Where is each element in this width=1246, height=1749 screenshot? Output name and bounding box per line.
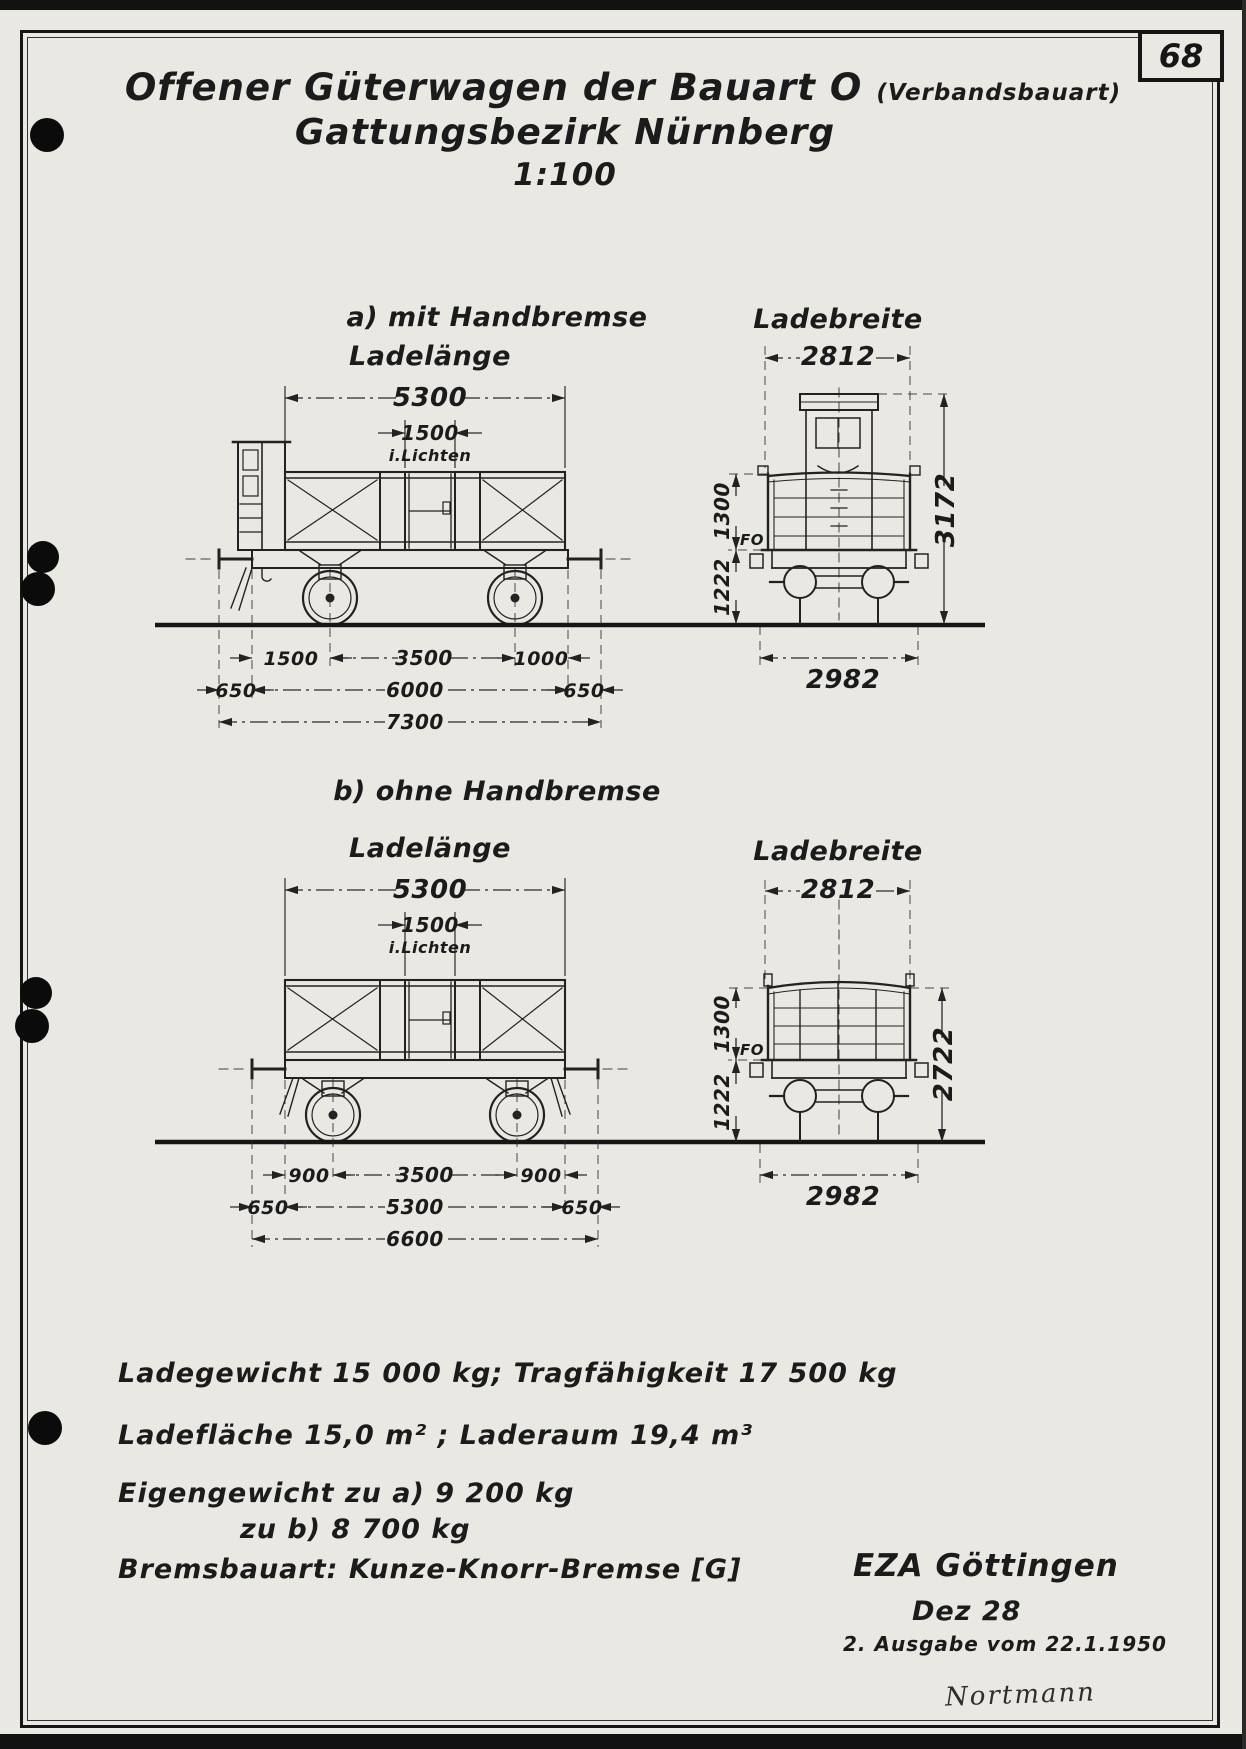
spec-load-weight: Ladegewicht 15 000 kg; Tragfähigkeit 17 …	[118, 1358, 898, 1389]
dim-rows-b: 900 3500 900 650 5300 650 6600	[230, 1078, 620, 1251]
dim-a-row2-left: 650	[215, 680, 256, 702]
load-width-label-a: Ladebreite	[753, 304, 923, 335]
scan-edge-bottom	[0, 1734, 1246, 1749]
section-b-drawing: b) ohne Handbremse Ladelänge 5300 1500 i…	[0, 760, 1246, 1280]
title-note: (Verbandsbauart)	[876, 80, 1121, 106]
dim-a-row1-right: 1000	[514, 648, 569, 670]
dim-wall-height-b: 1300	[710, 995, 734, 1053]
dim-door-width-b: 1500 i.Lichten	[378, 912, 482, 976]
dim-overall-width-b: 2982	[806, 1182, 880, 1212]
dim-load-width-b: Ladebreite 2812	[753, 836, 923, 982]
section-b-heading: b) ohne Handbremse	[333, 776, 661, 807]
page-number: 68	[1159, 37, 1204, 75]
dim-overall-width-a: 2982	[806, 665, 880, 695]
dim-door-width-b-value: 1500	[401, 913, 459, 937]
page-number-box: 68	[1138, 30, 1224, 82]
scan-edge-top	[0, 0, 1246, 10]
dim-b-row2-mid: 5300	[386, 1195, 444, 1219]
section-a-heading: a) mit Handbremse	[347, 302, 648, 333]
drawing-scale: 1:100	[0, 157, 1130, 193]
dim-heights-b: 1300 FO 1222 2722 2982	[710, 988, 959, 1212]
floor-mark-a: FO	[740, 531, 764, 549]
dim-door-width-a: 1500 i.Lichten	[378, 420, 482, 468]
issuing-office: EZA Göttingen	[853, 1548, 1119, 1584]
dim-floor-height-b: 1222	[710, 1073, 734, 1131]
load-length-label-b: Ladelänge	[349, 833, 511, 864]
dim-floor-height-a: 1222	[710, 558, 734, 616]
wagon-a-end-view	[750, 388, 928, 624]
dim-overall-height-b: 2722	[929, 1027, 959, 1101]
section-a-drawing: a) mit Handbremse Ladelänge 5300 1500 i.…	[0, 268, 1246, 760]
dim-b-row2-right: 650	[561, 1197, 602, 1219]
dim-rows-a: 1500 3500 1000 650 6000 650 7300	[197, 568, 623, 734]
page-subtitle: Gattungsbezirk Nürnberg	[0, 112, 1130, 153]
spec-tare-a: Eigengewicht zu a) 9 200 kg	[118, 1478, 574, 1509]
dim-b-row1-right: 900	[520, 1165, 561, 1187]
dim-load-width-b-value: 2812	[801, 875, 875, 905]
spec-tare-b: zu b) 8 700 kg	[240, 1514, 471, 1545]
dim-b-row1-left: 900	[288, 1165, 329, 1187]
dim-a-row1-mid: 3500	[395, 646, 453, 670]
wagon-b-side-view	[219, 980, 631, 1142]
dim-load-length-a-value: 5300	[393, 383, 467, 413]
spec-load-area: Ladefläche 15,0 m² ; Laderaum 19,4 m³	[118, 1420, 753, 1451]
wagon-a-side-view	[186, 442, 634, 625]
dim-b-row2-left: 650	[247, 1197, 288, 1219]
dim-door-width-a-value: 1500	[401, 421, 459, 445]
wagon-b-end-view	[750, 900, 928, 1140]
floor-mark-b: FO	[740, 1041, 764, 1059]
punch-hole	[28, 1411, 62, 1445]
dim-door-note-a: i.Lichten	[389, 446, 472, 465]
spec-brake-type: Bremsbauart: Kunze-Knorr-Bremse [G]	[118, 1554, 741, 1585]
dim-load-width-a-value: 2812	[801, 342, 875, 372]
page-title: Offener Güterwagen der Bauart O	[125, 66, 862, 109]
dim-b-row1-mid: 3500	[396, 1163, 454, 1187]
dim-a-total: 7300	[386, 710, 444, 734]
dim-a-row2-mid: 6000	[386, 678, 444, 702]
dim-overall-height-a: 3172	[931, 473, 961, 547]
dim-a-row1-left: 1500	[264, 648, 319, 670]
issue-date: Dez 28	[912, 1596, 1021, 1627]
dim-wall-height-a: 1300	[710, 482, 734, 540]
dim-door-note-b: i.Lichten	[389, 938, 472, 957]
page-title-line: Offener Güterwagen der Bauart O(Verbands…	[0, 66, 1246, 109]
dim-heights-a: 1300 FO 1222 3172 2982	[710, 394, 961, 695]
load-width-label-b: Ladebreite	[753, 836, 923, 867]
dim-a-row2-right: 650	[563, 680, 604, 702]
load-length-label-a: Ladelänge	[349, 341, 511, 372]
dim-load-length-b-value: 5300	[393, 875, 467, 905]
edition-note: 2. Ausgabe vom 22.1.1950	[843, 1632, 1167, 1656]
dim-b-total: 6600	[386, 1227, 444, 1251]
signature: Nortmann	[945, 1677, 1097, 1712]
